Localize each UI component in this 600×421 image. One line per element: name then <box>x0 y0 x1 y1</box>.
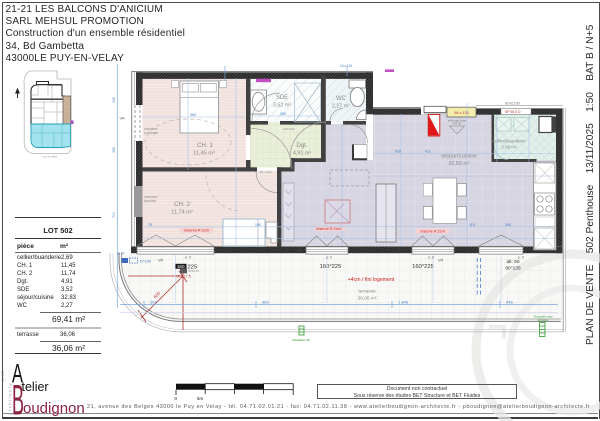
svg-text:bouchée: bouchée <box>144 199 156 203</box>
svg-text:32,83 m²: 32,83 m² <box>448 161 469 167</box>
svg-text:5m: 5m <box>197 396 203 401</box>
svg-text:réserve R 2cm: réserve R 2cm <box>420 229 445 233</box>
svg-text:e: 0: e: 0 <box>326 255 332 259</box>
svg-text:120x190: 120x190 <box>283 127 295 131</box>
svg-text:réserve R 2cm: réserve R 2cm <box>316 227 341 231</box>
svg-text:rue du stade: rue du stade <box>43 155 58 159</box>
svg-text:360: 360 <box>190 113 196 117</box>
svg-text:e: 0: e: 0 <box>185 255 191 259</box>
svg-text:75: 75 <box>148 223 152 227</box>
svg-text:CH. 1: CH. 1 <box>197 142 213 149</box>
svg-text:séjour/cuisine: séjour/cuisine <box>441 154 476 160</box>
svg-text:WC: WC <box>336 96 347 102</box>
svg-text:oudignon: oudignon <box>23 400 85 416</box>
svg-text:terrasse: terrasse <box>538 318 549 322</box>
svg-text:D=100: D=100 <box>140 260 151 264</box>
svg-text:3,52 m²: 3,52 m² <box>273 103 291 109</box>
svg-text:11,74 m²: 11,74 m² <box>171 210 193 216</box>
svg-text:+4cm / fini logement: +4cm / fini logement <box>348 277 395 283</box>
svg-text:m 37: m 37 <box>118 252 125 256</box>
svg-text:telier: telier <box>22 380 49 394</box>
svg-text:2,69 m²: 2,69 m² <box>502 145 517 150</box>
svg-text:96 x 134: 96 x 134 <box>454 111 469 115</box>
svg-text:0: 0 <box>175 396 178 401</box>
svg-text:710: 710 <box>112 212 116 218</box>
svg-text:546: 546 <box>506 300 513 305</box>
svg-text:411: 411 <box>425 150 431 154</box>
svg-text:VR: VR <box>158 259 164 263</box>
svg-text:4,91 m²: 4,91 m² <box>293 151 311 157</box>
svg-text:80 96,5 80: 80 96,5 80 <box>505 102 520 106</box>
svg-text:Dgt.: Dgt. <box>296 143 307 149</box>
svg-text:80°135: 80°135 <box>505 265 521 271</box>
svg-text:103: 103 <box>150 300 157 305</box>
svg-text:363: 363 <box>262 300 269 305</box>
svg-text:250: 250 <box>280 112 286 116</box>
svg-text:VR: VR <box>120 117 126 121</box>
svg-text:16 x 134: 16 x 134 <box>340 64 352 68</box>
svg-text:à changer: à changer <box>144 131 159 135</box>
svg-text:terrasse: terrasse <box>358 289 376 295</box>
svg-text:architecte: architecte <box>8 382 13 415</box>
svg-text:160°225: 160°225 <box>412 264 434 270</box>
svg-text:90 x 204: 90 x 204 <box>260 170 272 174</box>
svg-text:2,27 m²: 2,27 m² <box>332 104 350 110</box>
svg-text:928: 928 <box>395 150 401 154</box>
svg-text:356: 356 <box>112 147 116 153</box>
svg-text:1 845: 1 845 <box>398 300 409 305</box>
svg-text:110: 110 <box>469 223 475 227</box>
svg-text:SDE: SDE <box>276 95 288 101</box>
svg-text:160: 160 <box>177 264 185 269</box>
svg-text:réserve R 2cm: réserve R 2cm <box>184 229 209 233</box>
svg-text:SP 96,5 D: SP 96,5 D <box>505 110 521 114</box>
svg-text:e: 0: e: 0 <box>518 255 524 259</box>
svg-text:alt: 90: alt: 90 <box>506 259 519 265</box>
svg-text:36,06 m²: 36,06 m² <box>358 296 377 302</box>
svg-text:OR 90: OR 90 <box>453 122 462 126</box>
svg-text:245: 245 <box>112 97 116 103</box>
svg-text:165: 165 <box>505 223 511 227</box>
svg-text:10 x 17,5: 10 x 17,5 <box>176 275 191 279</box>
svg-text:CH. 2: CH. 2 <box>174 201 190 208</box>
svg-text:11,45 m²: 11,45 m² <box>193 151 215 157</box>
svg-text:rabattable SP: rabattable SP <box>292 338 310 342</box>
svg-text:SPM 43: SPM 43 <box>188 269 199 273</box>
svg-text:160°225: 160°225 <box>320 264 342 270</box>
svg-text:VR: VR <box>438 259 444 263</box>
svg-text:e: 0: e: 0 <box>428 255 434 259</box>
svg-text:190: 190 <box>255 223 261 227</box>
